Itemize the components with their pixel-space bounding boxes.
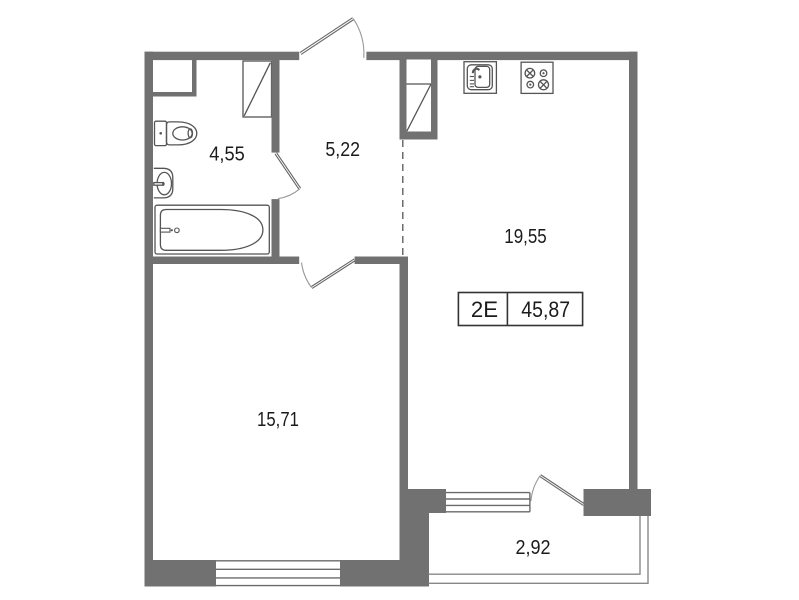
- svg-text:5,22: 5,22: [325, 139, 360, 161]
- svg-text:4,55: 4,55: [209, 143, 245, 165]
- svg-text:2,92: 2,92: [515, 537, 550, 559]
- svg-text:15,71: 15,71: [257, 409, 299, 431]
- svg-text:2Е: 2Е: [471, 297, 498, 322]
- svg-text:45,87: 45,87: [521, 297, 570, 322]
- svg-text:19,55: 19,55: [504, 226, 547, 248]
